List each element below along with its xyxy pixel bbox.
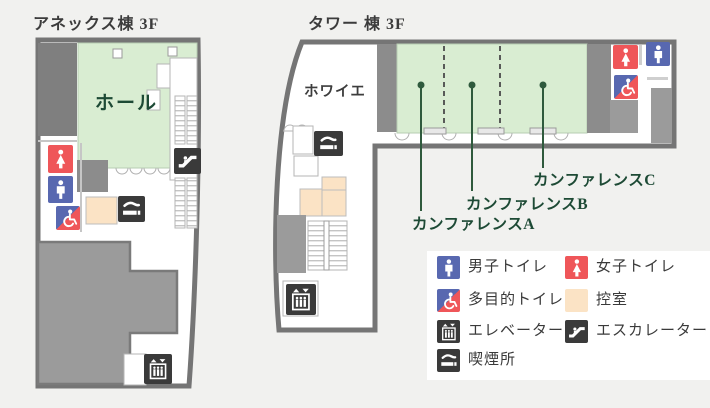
floor-map: アネックス棟 3F タワー 棟 3F ホール ホワイエ カンファレンスA カンフ… <box>0 0 710 408</box>
female-toilet-icon <box>565 256 588 279</box>
smoking-area-icon <box>437 349 460 372</box>
foyer-label: ホワイエ <box>304 80 366 101</box>
legend-label: エスカレーター <box>596 320 708 343</box>
annex-waiting-room <box>86 197 117 224</box>
smoking-area-icon <box>314 131 343 156</box>
tower-title: タワー 棟 3F <box>308 10 406 34</box>
smoking-area-icon <box>118 196 145 222</box>
escalator-icon <box>565 320 588 343</box>
legend-label: 喫煙所 <box>468 349 516 372</box>
conference-a-label: カンファレンスA <box>412 212 535 234</box>
female-toilet-icon <box>613 45 638 69</box>
annex-service-block <box>38 43 77 136</box>
elevator-icon <box>286 284 316 315</box>
male-toilet-icon <box>48 176 73 203</box>
female-toilet-icon <box>48 145 73 173</box>
tower-conference-area <box>397 44 587 133</box>
legend-item: エレベーター <box>437 320 564 343</box>
male-toilet-icon <box>646 42 670 66</box>
escalator-icon <box>174 148 201 174</box>
annex-title: アネックス棟 3F <box>33 10 159 34</box>
male-toilet-icon <box>437 256 460 279</box>
hall-label: ホール <box>95 88 158 115</box>
multipurpose-toilet-icon <box>56 206 80 230</box>
legend-label: 多目的トイレ <box>468 289 564 312</box>
legend-item: 多目的トイレ <box>437 289 564 312</box>
legend-label: 女子トイレ <box>596 256 676 279</box>
legend: 男子トイレ 女子トイレ 多目的トイレ 控室 エレベーター エスカレーター 喫煙所 <box>427 251 710 380</box>
conference-b-label: カンファレンスB <box>466 192 588 214</box>
multipurpose-toilet-icon <box>437 289 460 312</box>
legend-label: 男子トイレ <box>468 256 548 279</box>
legend-item: 男子トイレ <box>437 256 548 279</box>
tower-waiting-room <box>300 189 346 216</box>
legend-item: 喫煙所 <box>437 349 516 372</box>
elevator-icon <box>437 320 460 343</box>
legend-item: 女子トイレ <box>565 256 676 279</box>
legend-label: 控室 <box>596 289 628 312</box>
waiting-room-swatch <box>565 289 588 312</box>
legend-item: 控室 <box>565 289 628 312</box>
elevator-icon <box>144 354 172 384</box>
legend-label: エレベーター <box>468 320 564 343</box>
conference-c-label: カンファレンスC <box>533 168 656 190</box>
legend-item: エスカレーター <box>565 320 708 343</box>
multipurpose-toilet-icon <box>614 75 638 99</box>
